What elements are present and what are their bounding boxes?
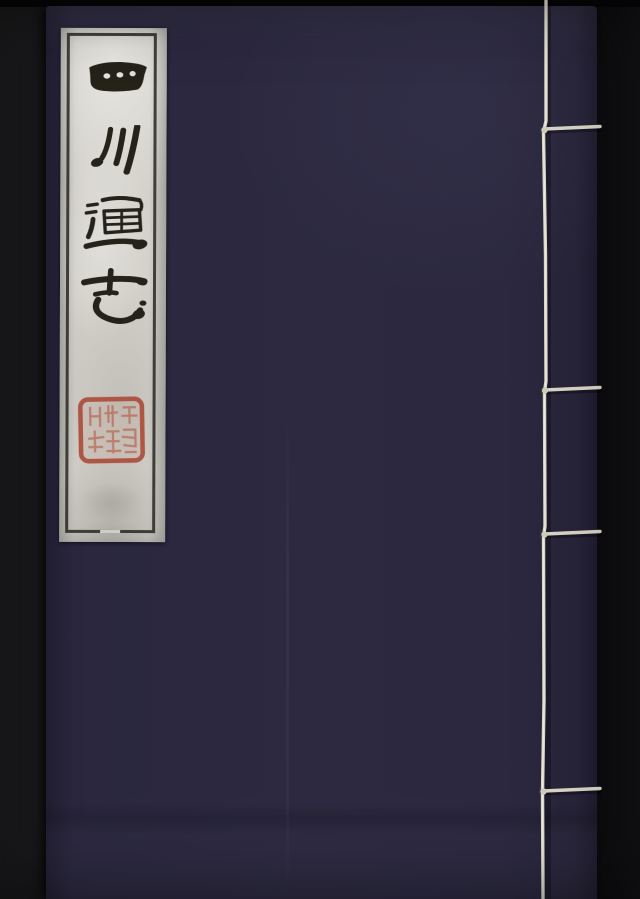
cover-crease-horizontal: [46, 801, 597, 835]
title-char-chuan: [88, 125, 146, 177]
book-cover: [46, 6, 597, 899]
title-char-si: [87, 58, 149, 94]
background-right: [595, 0, 640, 899]
frame-wear-gap: [100, 530, 120, 533]
collector-seal: [76, 394, 147, 465]
paper-smudge: [75, 480, 147, 524]
book-photo: [0, 0, 640, 899]
background-left: [0, 0, 50, 899]
title-char-zhi: [80, 268, 150, 334]
title-char-tong: [82, 192, 150, 260]
title-label: [59, 28, 167, 542]
